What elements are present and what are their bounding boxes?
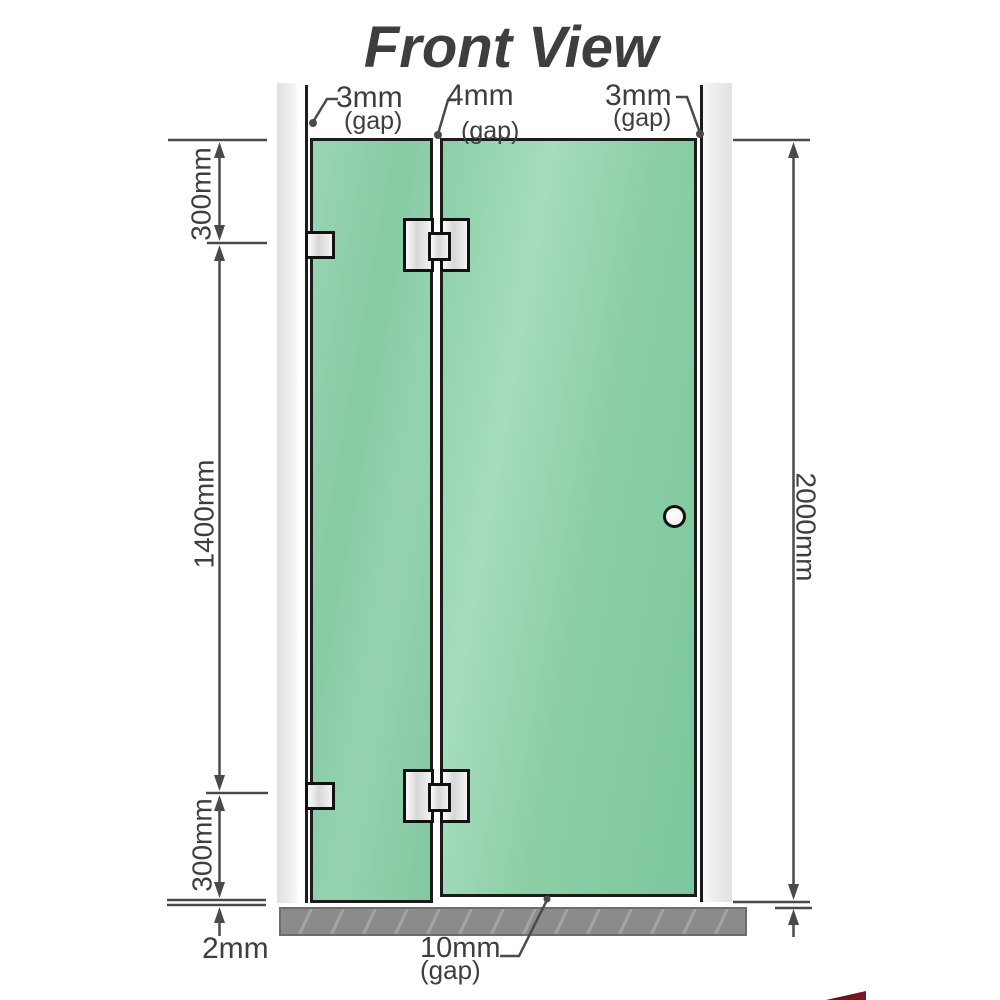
dim-label-floor-gap: 2mm — [202, 933, 269, 964]
dim-label-left-middle: 1400mm — [189, 460, 218, 569]
left-wall — [277, 83, 297, 903]
hinge-top-knuckle — [428, 232, 451, 261]
gap-label-top-left-note: (gap) — [344, 108, 402, 134]
gap-label-top-middle-note: (gap) — [461, 118, 519, 144]
door-glass-panel — [440, 138, 697, 897]
door-knob — [663, 505, 686, 528]
left-wall-edge-line — [305, 85, 308, 903]
shower-screen-front-view-diagram: Front View 3mm (gap) 4mm (gap) 3mm (gap)… — [0, 0, 1000, 1000]
dim-label-left-bottom: 300mm — [187, 798, 216, 891]
wall-bracket-top — [305, 231, 335, 259]
floor-base — [279, 907, 747, 936]
right-wall — [703, 83, 732, 902]
dim-label-left-top: 300mm — [186, 147, 215, 240]
dim-label-right-height: 2000mm — [791, 473, 820, 582]
hinge-bottom-knuckle — [428, 783, 451, 812]
right-wall-edge-line — [700, 85, 703, 902]
watermark-logo — [826, 991, 866, 1000]
gap-label-top-middle-value: 4mm — [447, 80, 514, 111]
gap-label-top-right-note: (gap) — [613, 105, 671, 131]
diagram-title: Front View — [364, 18, 658, 78]
gap-label-bottom-note: (gap) — [420, 957, 481, 984]
wall-bracket-bottom — [305, 782, 335, 810]
